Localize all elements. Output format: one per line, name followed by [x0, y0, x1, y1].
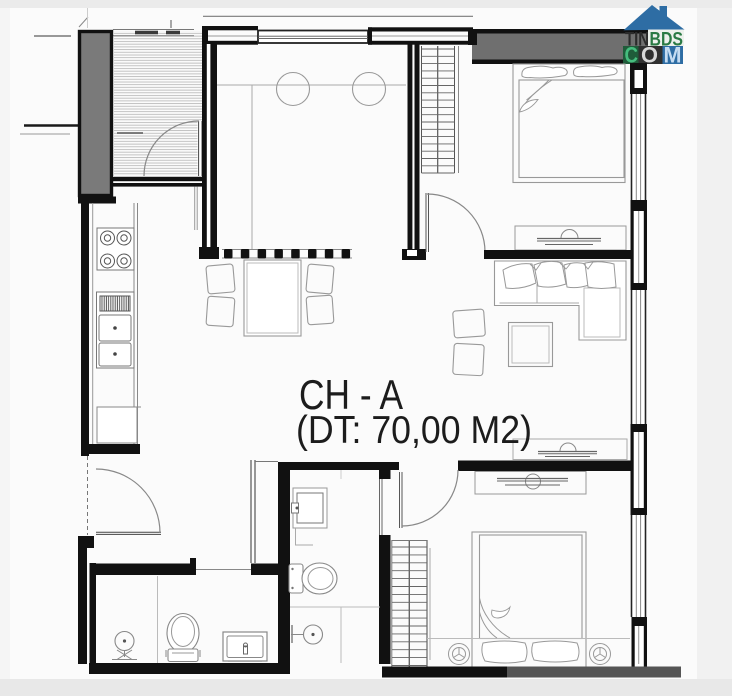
- svg-text:(DT: 70,00 M2): (DT: 70,00 M2): [296, 409, 532, 452]
- svg-text:M: M: [664, 43, 682, 68]
